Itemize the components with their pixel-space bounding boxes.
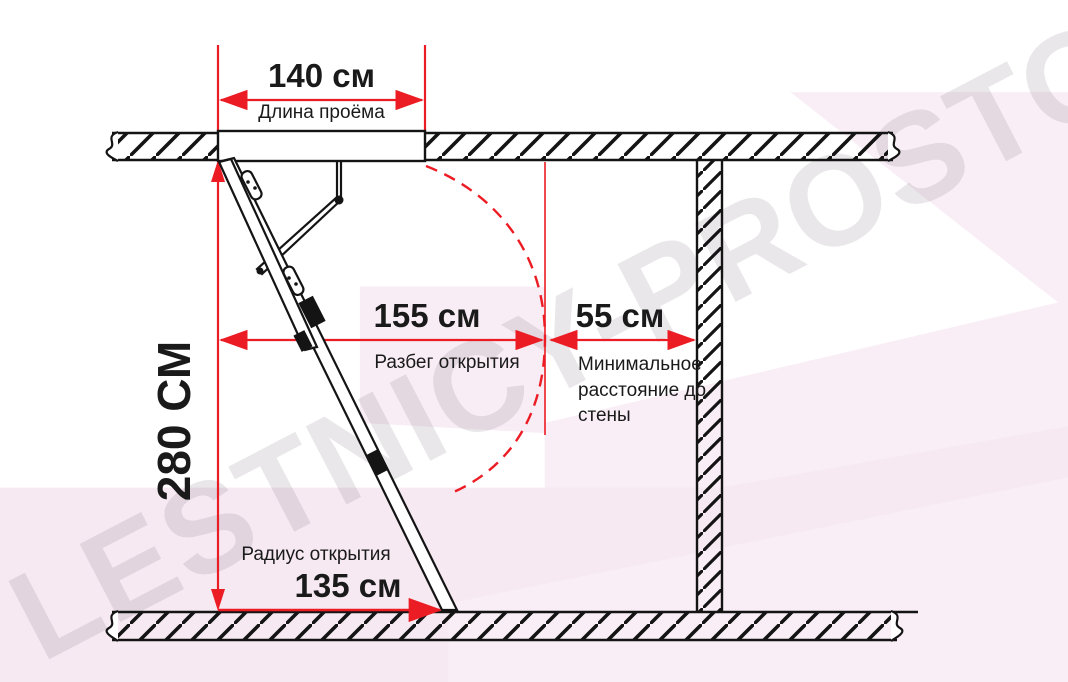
attic-ladder-dimension-diagram: LESTNICY-PROSTO.RU — [0, 0, 1068, 682]
wall-distance-value: 55 см — [560, 296, 680, 336]
opening-span-value: 155 см — [322, 296, 532, 336]
attic-ladder — [219, 158, 457, 610]
floor-section — [107, 611, 918, 641]
opening-length-label: Длина проёма — [218, 102, 425, 125]
opening-radius-label: Радиус открытия — [226, 544, 406, 567]
opening-box — [218, 131, 425, 161]
opening-span-label: Разбег открытия — [357, 352, 537, 375]
ceiling-height-value: 280 СМ — [143, 271, 205, 571]
opening-length-value: 140 см — [218, 56, 425, 96]
wall-distance-label: Минимальное расстояние до стены — [578, 352, 714, 429]
opening-radius-value: 135 см — [262, 566, 434, 606]
